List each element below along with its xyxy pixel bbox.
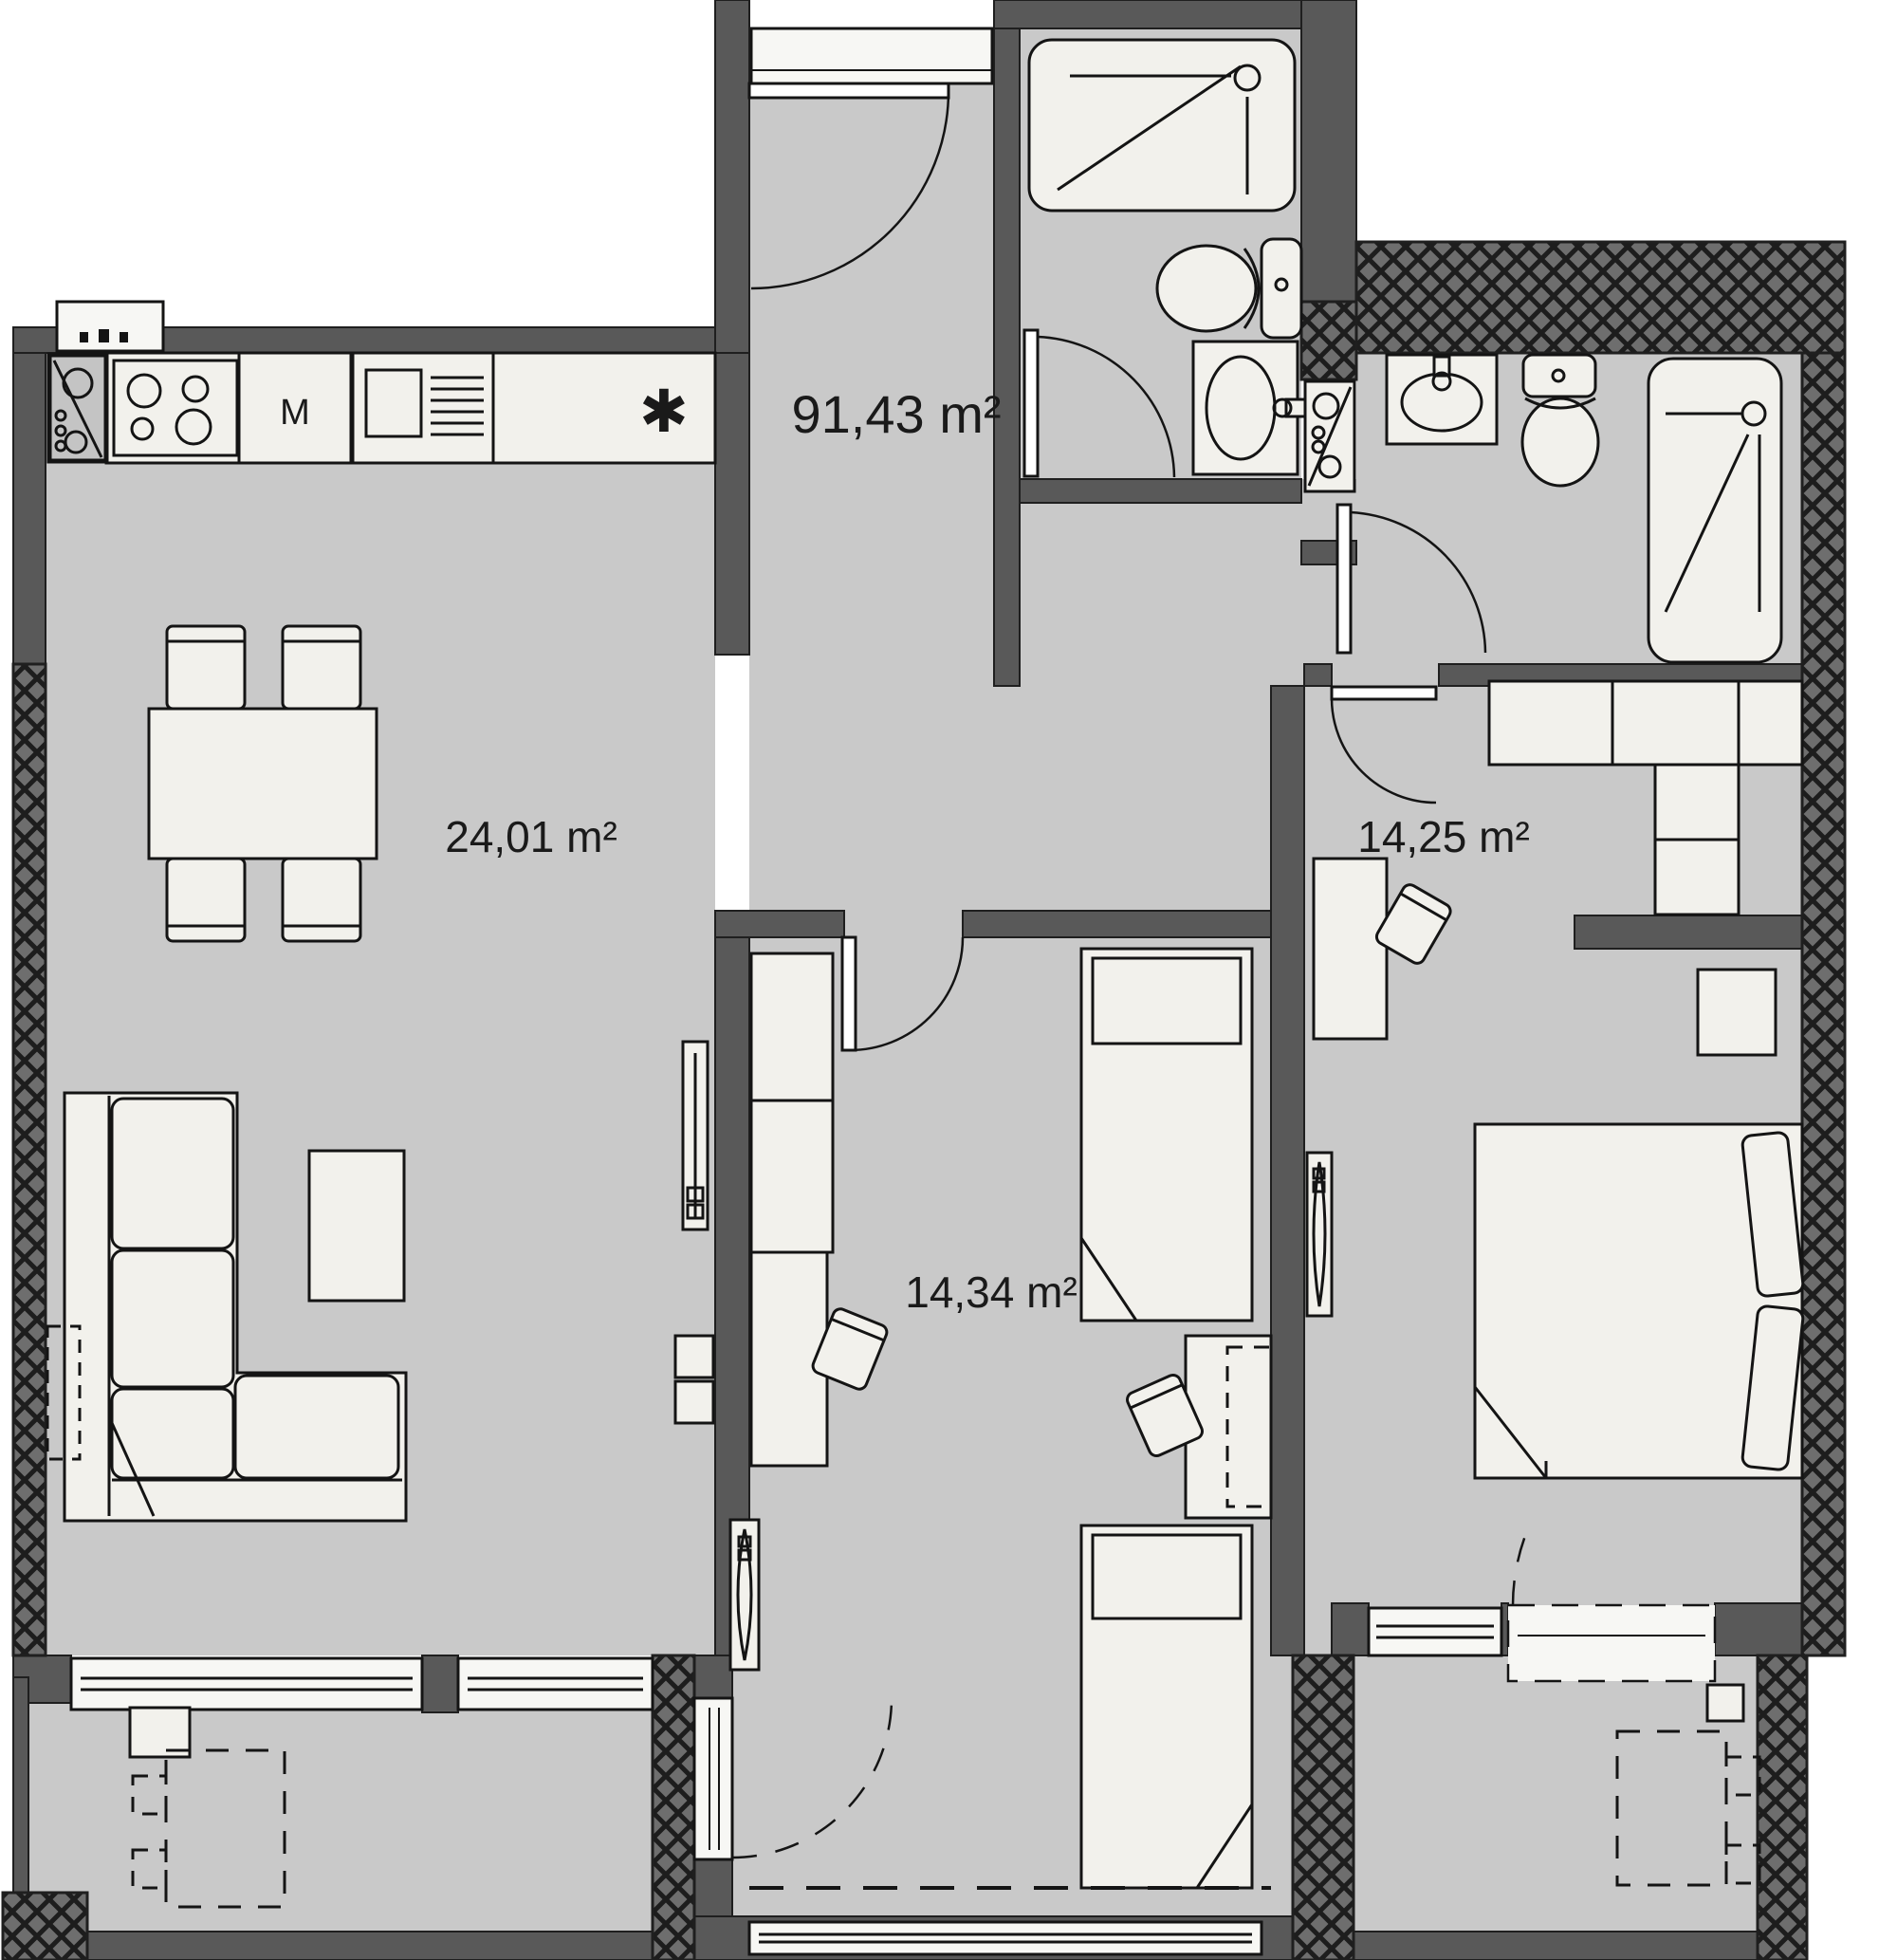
bedroom-right-area-label: 14,25 m² [1357, 812, 1530, 861]
desk-icon [1314, 859, 1387, 1039]
wall-midbedroom-top-left [715, 911, 844, 937]
wall-bedroomright-window-pier3 [1715, 1603, 1802, 1655]
floor-plan-drawing: M ✱ [0, 0, 1897, 1960]
wall-hatch-balconyR-left-pier [1293, 1655, 1354, 1960]
window-midbedroom-bottom [749, 1922, 1262, 1954]
dining-chair [283, 626, 360, 709]
wall-hall-left [715, 0, 749, 353]
single-bed-icon [1081, 949, 1252, 1321]
floor-entry-hall [749, 28, 994, 937]
wall-midbedroom-top-right [963, 911, 1271, 937]
wall-stub-bedroom-door [1304, 664, 1332, 686]
washbasin-icon [1387, 355, 1497, 444]
shower-tray-icon [1029, 40, 1295, 211]
toilet-icon [1157, 239, 1301, 338]
bedroom-middle-area-label: 14,34 m² [905, 1267, 1077, 1317]
wall-hatch-balconyR-right-pier [1758, 1655, 1807, 1960]
wall-bath1-left [994, 28, 1020, 686]
wall-bumpout-above-door [694, 1655, 732, 1698]
tv-panel-icon [683, 1042, 708, 1230]
floor-plan-page: M ✱ [0, 0, 1897, 1960]
washbasin-icon [1193, 342, 1305, 474]
counter-symbol-label: ✱ [639, 379, 689, 445]
single-bed-icon [1081, 1525, 1252, 1888]
laundry-sink-unit-icon [1305, 381, 1354, 491]
clipped-unit-label [57, 302, 163, 351]
total-area-label: 91,43 m² [792, 384, 1002, 444]
floor-balcony-left [19, 1677, 694, 1935]
wall-balcony-right-bottom [1354, 1932, 1758, 1960]
planter-icon [1707, 1685, 1743, 1721]
kitchen: M ✱ [49, 353, 715, 463]
wall-living-left-upper [13, 353, 46, 664]
stove-icon [114, 361, 237, 455]
wall-bedrooms-divider [1271, 686, 1304, 1655]
wall-hatch-balcony-column [653, 1655, 694, 1960]
media-shelf-icon [675, 1381, 713, 1423]
window-living-1 [71, 1658, 422, 1710]
dining-chair [167, 626, 245, 709]
wall-bedroomright-window-pier1 [1332, 1603, 1369, 1655]
radiator-icon [1307, 1153, 1332, 1316]
dining-chair [167, 859, 245, 941]
dining-chair [283, 859, 360, 941]
wall-bedroom-right-stub [1575, 915, 1802, 949]
wardrobe-icon [1489, 681, 1802, 765]
window-bedroom-right [1369, 1608, 1501, 1655]
dishwasher-icon [353, 353, 493, 463]
wall-hatch-balconyL-corner-pier [3, 1893, 87, 1960]
entrance-landing [751, 28, 992, 83]
double-bed-icon [1475, 1124, 1804, 1478]
wall-living-hall-divider [715, 353, 749, 655]
coffee-table-icon [309, 1151, 404, 1301]
living-area-label: 24,01 m² [445, 812, 617, 861]
toilet-icon [1522, 355, 1598, 486]
wall-hatch-living-left [13, 664, 46, 1655]
floor-corridor-lower [994, 686, 1271, 937]
nightstand-icon [1698, 970, 1776, 1055]
dining-table [149, 709, 377, 859]
wardrobe-icon [751, 953, 833, 1252]
media-shelf-icon [675, 1336, 713, 1378]
wall-bath1-right [1301, 0, 1356, 302]
window-living-2 [458, 1658, 653, 1710]
kitchen-machine-label: M [280, 393, 310, 433]
wall-hatch-right [1802, 353, 1845, 1655]
radiator-icon [730, 1520, 759, 1670]
bathtub-icon [1648, 359, 1781, 662]
floor-balcony-right [1354, 1655, 1758, 1935]
wall-window-pier-mid [422, 1655, 458, 1712]
kitchen-machine-icon: M [239, 353, 351, 463]
kitchen-sink-icon [49, 355, 106, 461]
wardrobe-icon [1655, 765, 1739, 915]
wall-balcony-left-bottom [13, 1932, 694, 1960]
wall-bath1-bottom [1020, 479, 1301, 503]
wall-hatch-top-right [1356, 242, 1845, 353]
wall-hatch-bath1-corner [1301, 302, 1356, 379]
